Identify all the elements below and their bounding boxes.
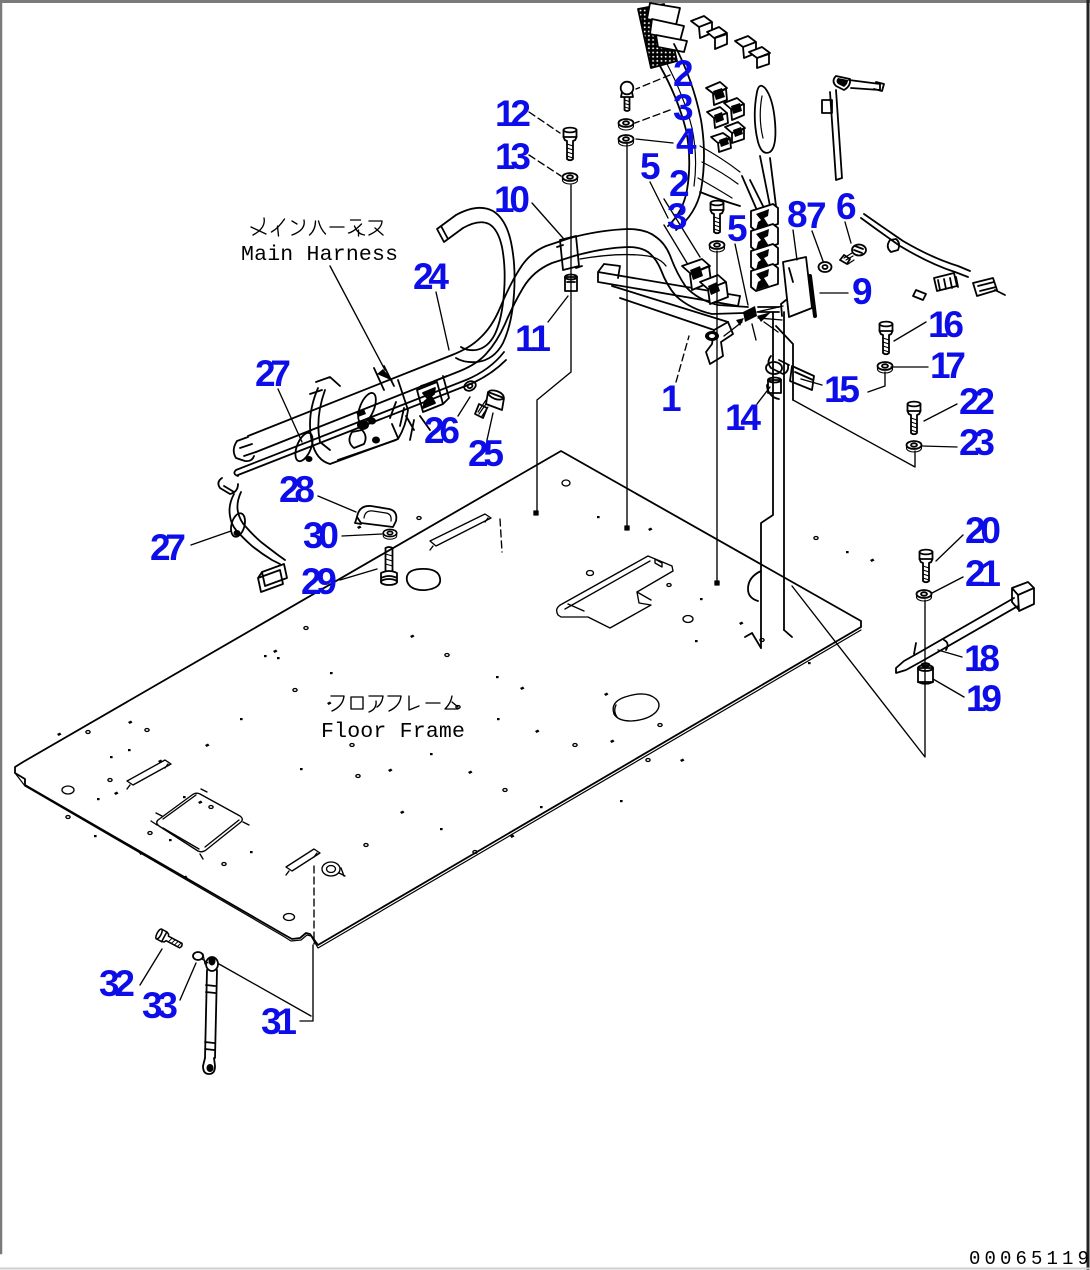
svg-text:33: 33	[142, 985, 178, 1026]
svg-text:12: 12	[495, 93, 531, 134]
svg-text:3: 3	[667, 196, 688, 237]
svg-text:5: 5	[640, 146, 661, 187]
svg-text:14: 14	[725, 397, 761, 438]
svg-text:21: 21	[965, 553, 1001, 594]
svg-text:5: 5	[727, 208, 748, 249]
svg-text:13: 13	[495, 136, 531, 177]
svg-text:1: 1	[661, 378, 682, 419]
svg-text:31: 31	[261, 1001, 297, 1042]
svg-text:4: 4	[676, 121, 697, 162]
svg-text:6: 6	[836, 186, 857, 227]
svg-text:20: 20	[965, 510, 1001, 551]
svg-text:Floor Frame: Floor Frame	[321, 720, 465, 744]
svg-text:25: 25	[468, 433, 504, 474]
svg-text:10: 10	[494, 179, 530, 220]
svg-text:30: 30	[303, 515, 339, 556]
svg-text:7: 7	[806, 195, 827, 236]
svg-text:26: 26	[424, 410, 460, 451]
svg-text:32: 32	[99, 963, 135, 1004]
svg-text:9: 9	[852, 271, 873, 312]
svg-text:18: 18	[964, 638, 1000, 679]
svg-text:28: 28	[279, 469, 315, 510]
svg-text:19: 19	[966, 678, 1002, 719]
svg-text:15: 15	[824, 369, 860, 410]
svg-text:22: 22	[959, 381, 995, 422]
svg-text:00065119: 00065119	[969, 1248, 1090, 1270]
svg-text:17: 17	[930, 345, 966, 386]
svg-text:29: 29	[301, 561, 337, 602]
svg-text:27: 27	[255, 353, 291, 394]
svg-text:24: 24	[413, 256, 449, 297]
svg-text:8: 8	[787, 194, 808, 235]
svg-text:16: 16	[928, 304, 964, 345]
svg-text:23: 23	[959, 422, 995, 463]
svg-text:27: 27	[150, 527, 186, 568]
svg-text:Main Harness: Main Harness	[241, 243, 398, 267]
svg-text:11: 11	[515, 318, 551, 359]
